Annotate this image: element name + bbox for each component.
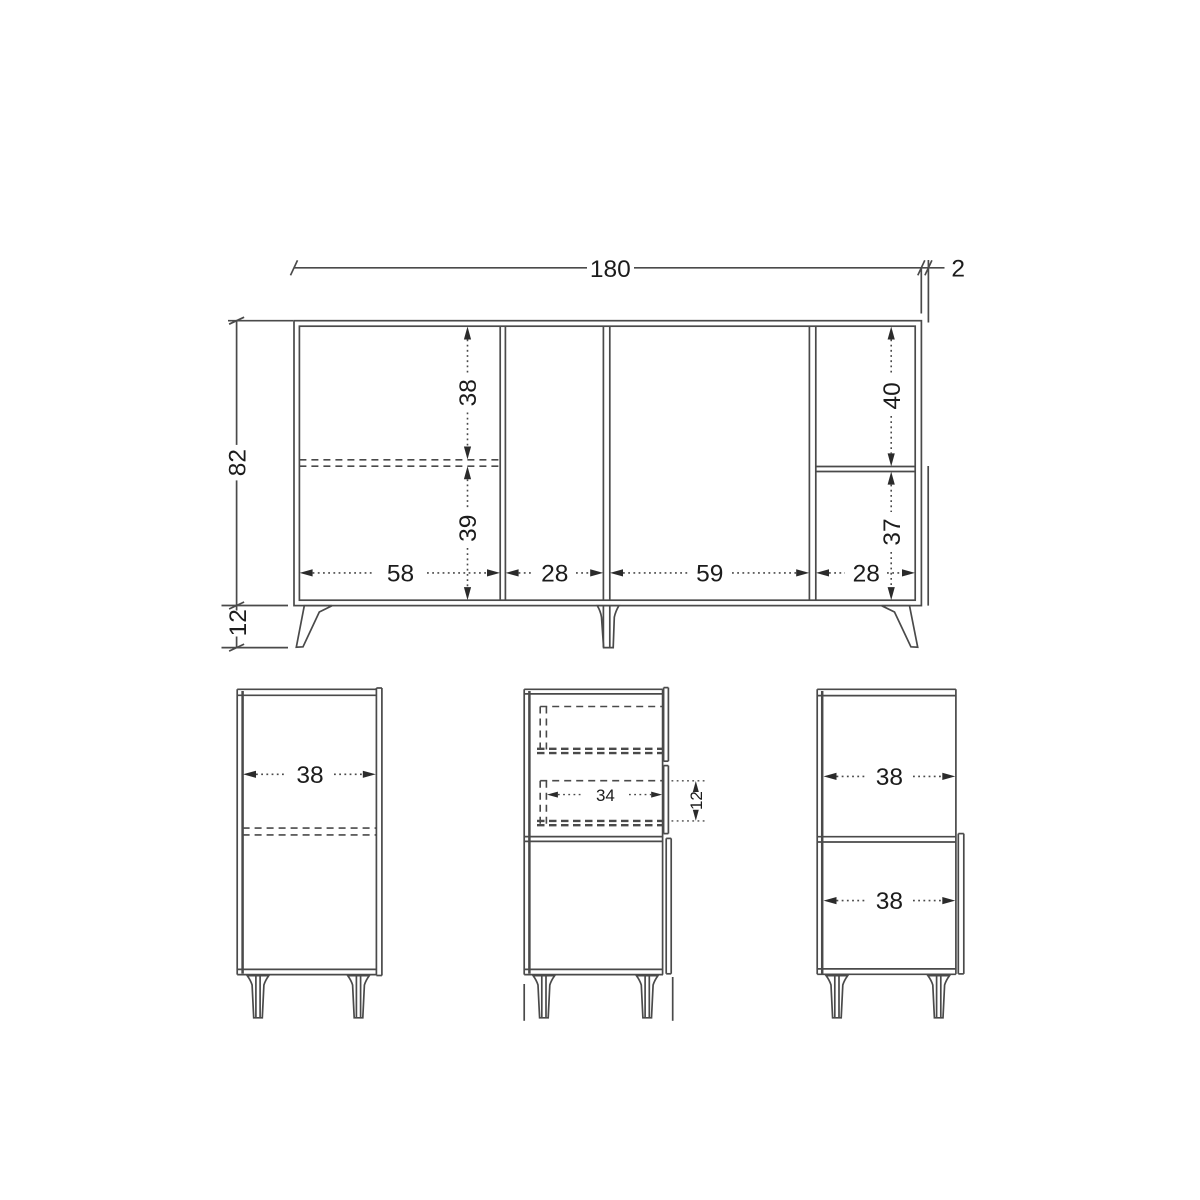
- svg-text:34: 34: [596, 786, 615, 805]
- svg-text:12: 12: [687, 791, 706, 810]
- svg-text:180: 180: [590, 256, 631, 283]
- svg-text:59: 59: [696, 561, 723, 588]
- svg-text:38: 38: [876, 888, 903, 915]
- svg-text:39: 39: [455, 515, 482, 542]
- svg-text:40: 40: [879, 382, 906, 409]
- svg-text:38: 38: [296, 762, 323, 789]
- svg-text:58: 58: [387, 561, 414, 588]
- svg-text:2: 2: [951, 256, 965, 283]
- svg-text:12: 12: [225, 609, 252, 636]
- svg-text:28: 28: [853, 561, 880, 588]
- svg-text:38: 38: [455, 379, 482, 406]
- svg-text:38: 38: [876, 764, 903, 791]
- svg-text:37: 37: [879, 518, 906, 545]
- svg-text:82: 82: [224, 449, 251, 476]
- svg-text:28: 28: [541, 561, 568, 588]
